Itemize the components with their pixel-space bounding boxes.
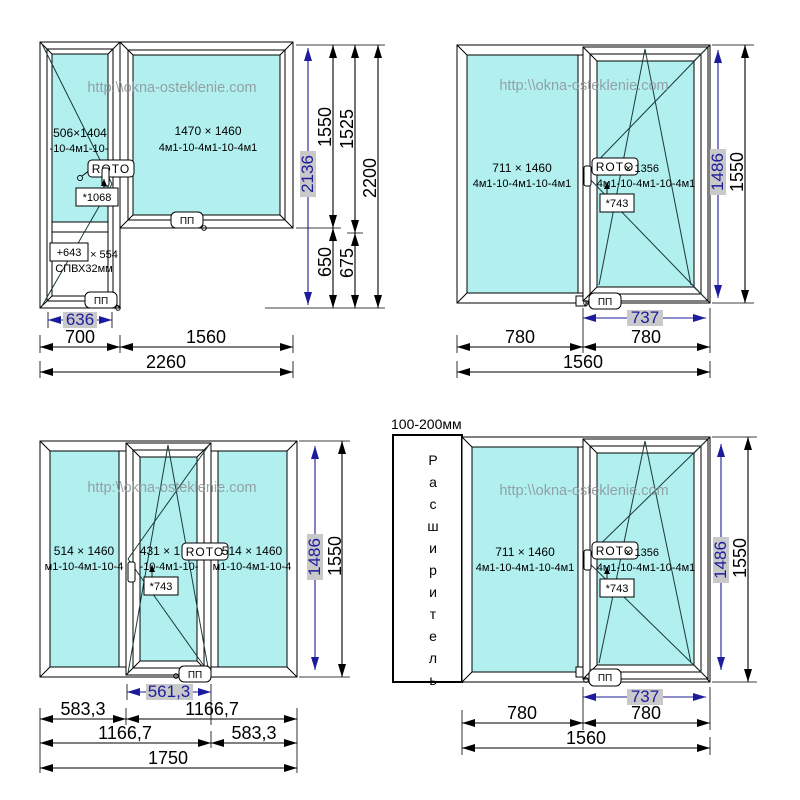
mid-glass-formula: -10-4м1-10- <box>140 561 199 573</box>
dimensions-horizontal: 561,3 583,3 1166,7 1166,7 583,3 1750 <box>40 682 297 773</box>
window-schematics-canvas: http:\\okna-osteklenie.com 506×1404 -10-… <box>0 0 800 800</box>
svg-text:ROTO: ROTO <box>186 545 224 559</box>
dim-total-height: 1550 <box>325 536 345 576</box>
dim-sash-height: 1486 <box>711 541 730 579</box>
dim-sash-width: 561,3 <box>148 682 191 701</box>
svg-text:*1068: *1068 <box>83 192 112 204</box>
pp-label-door: ПП <box>85 292 120 310</box>
dim-right-width: 780 <box>631 327 661 347</box>
svg-text:ROTO: ROTO <box>92 162 130 176</box>
diagram-balcony-block: http:\\okna-osteklenie.com 506×1404 -10-… <box>40 42 385 378</box>
door-glass-formula: -10-4м1-10- <box>50 143 109 155</box>
watermark: http:\\okna-osteklenie.com <box>87 80 256 96</box>
dimensions-vertical: 1486 1550 <box>299 441 350 677</box>
dim-window-width: 1560 <box>186 327 226 347</box>
fixed-glass-formula: 4м1-10-4м1-10-4м1 <box>473 178 572 190</box>
dim-total-height: 2200 <box>360 158 380 198</box>
dim-sash-height: 1486 <box>708 153 727 191</box>
svg-text:*743: *743 <box>606 583 629 595</box>
diagram-two-pane-window: http:\\okna-osteklenie.com 711 × 1460 4м… <box>457 45 754 378</box>
diagram-three-pane-window: http:\\okna-osteklenie.com 514 × 1460 м1… <box>40 441 350 773</box>
door-handle-icon <box>102 168 109 186</box>
panel-type-label: СПВХ32мм <box>55 263 112 275</box>
dim-height-650: 650 <box>315 247 335 277</box>
svg-text:ПП: ПП <box>188 670 202 681</box>
dim-row1-right: 1166,7 <box>185 699 239 719</box>
right-glass-formula: м1-10-4м1-10-4 <box>213 561 292 573</box>
window-glass-size: 1470 × 1460 <box>174 124 241 138</box>
fixed-glass-size: 711 × 1460 <box>495 545 555 559</box>
expander-size-note: 100-200мм <box>391 416 462 432</box>
diagram-window-with-expander: 100-200мм http:\\okna-osteklenie.com 711… <box>391 416 757 755</box>
dim-total-width: 1750 <box>148 748 188 768</box>
sash-handle-icon <box>584 166 591 186</box>
dimensions-vertical: 1486 1550 <box>711 437 757 682</box>
pp-label-window: ПП <box>171 212 206 230</box>
dim-total-width: 1560 <box>563 352 603 372</box>
pp-label-sash: ПП <box>584 293 621 309</box>
dim-left-width: 780 <box>507 703 537 723</box>
door-glass-size: 506×1404 <box>53 126 107 140</box>
mid-glass-size: 431 × 1 <box>140 544 181 558</box>
dim-total-height: 1550 <box>727 152 747 192</box>
svg-text:ПП: ПП <box>598 673 612 684</box>
dim-door-height: 2136 <box>298 155 317 193</box>
dim-row1-left: 583,3 <box>60 699 105 719</box>
pp-label-sash: ПП <box>584 669 621 686</box>
fixed-glass-formula: 4м1-10-4м1-10-4м1 <box>476 562 575 574</box>
dim-left-width: 780 <box>505 327 535 347</box>
left-glass-size: 514 × 1460 <box>54 544 115 558</box>
window-glass-formula: 4м1-10-4м1-10-4м1 <box>159 142 258 154</box>
dim-row2-right: 583,3 <box>231 723 276 743</box>
sash-glass-size: × 1356 <box>625 547 659 559</box>
svg-text:*743: *743 <box>606 198 629 210</box>
pp-label-sash: ПП <box>174 666 211 682</box>
sash-handle-icon <box>584 550 591 570</box>
expander-vertical-label: Расширитель <box>413 452 441 674</box>
dim-sash-height: 1486 <box>305 538 324 576</box>
watermark: http:\\okna-osteklenie.com <box>87 480 256 496</box>
dim-height-1525: 1525 <box>337 109 357 149</box>
dim-row2-left: 1166,7 <box>98 723 152 743</box>
dim-height-1550: 1550 <box>315 107 335 147</box>
sash-handle-icon <box>128 562 135 582</box>
dim-door-width: 700 <box>65 327 95 347</box>
dim-total-width: 2260 <box>146 352 186 372</box>
sash-glass-size: × 1356 <box>625 163 659 175</box>
svg-text:ПП: ПП <box>598 297 612 308</box>
dim-total-height: 1550 <box>730 538 750 578</box>
dimensions-horizontal: 636 700 1560 2260 <box>40 310 293 378</box>
dim-sash-width: 737 <box>631 308 659 327</box>
right-glass-size: 514 × 1460 <box>222 544 283 558</box>
sash-glass-formula: 4м1-10-4м1-10-4м1 <box>597 562 696 574</box>
svg-text:× 554: × 554 <box>90 249 118 261</box>
watermark: http:\\okna-osteklenie.com <box>499 78 668 94</box>
svg-text:*743: *743 <box>150 581 173 593</box>
dim-total-width: 1560 <box>566 728 606 748</box>
dimensions-vertical: 1486 1550 <box>708 45 754 303</box>
sash-glass-formula: 4м1-10-4м1-10-4м1 <box>597 178 696 190</box>
drawing-sheet: http:\\okna-osteklenie.com 506×1404 -10-… <box>0 0 800 800</box>
dim-right-width: 780 <box>631 703 661 723</box>
dimensions-horizontal: 737 780 780 1560 <box>457 308 710 378</box>
svg-text:ПП: ПП <box>94 296 108 307</box>
dim-height-675: 675 <box>337 248 357 278</box>
watermark: http:\\okna-osteklenie.com <box>499 483 668 499</box>
svg-text:+643: +643 <box>57 247 82 259</box>
dimensions-horizontal: 737 780 780 1560 <box>462 687 710 755</box>
left-glass-formula: м1-10-4м1-10-4 <box>45 561 124 573</box>
svg-text:ПП: ПП <box>180 216 194 227</box>
fixed-glass-size: 711 × 1460 <box>492 161 552 175</box>
